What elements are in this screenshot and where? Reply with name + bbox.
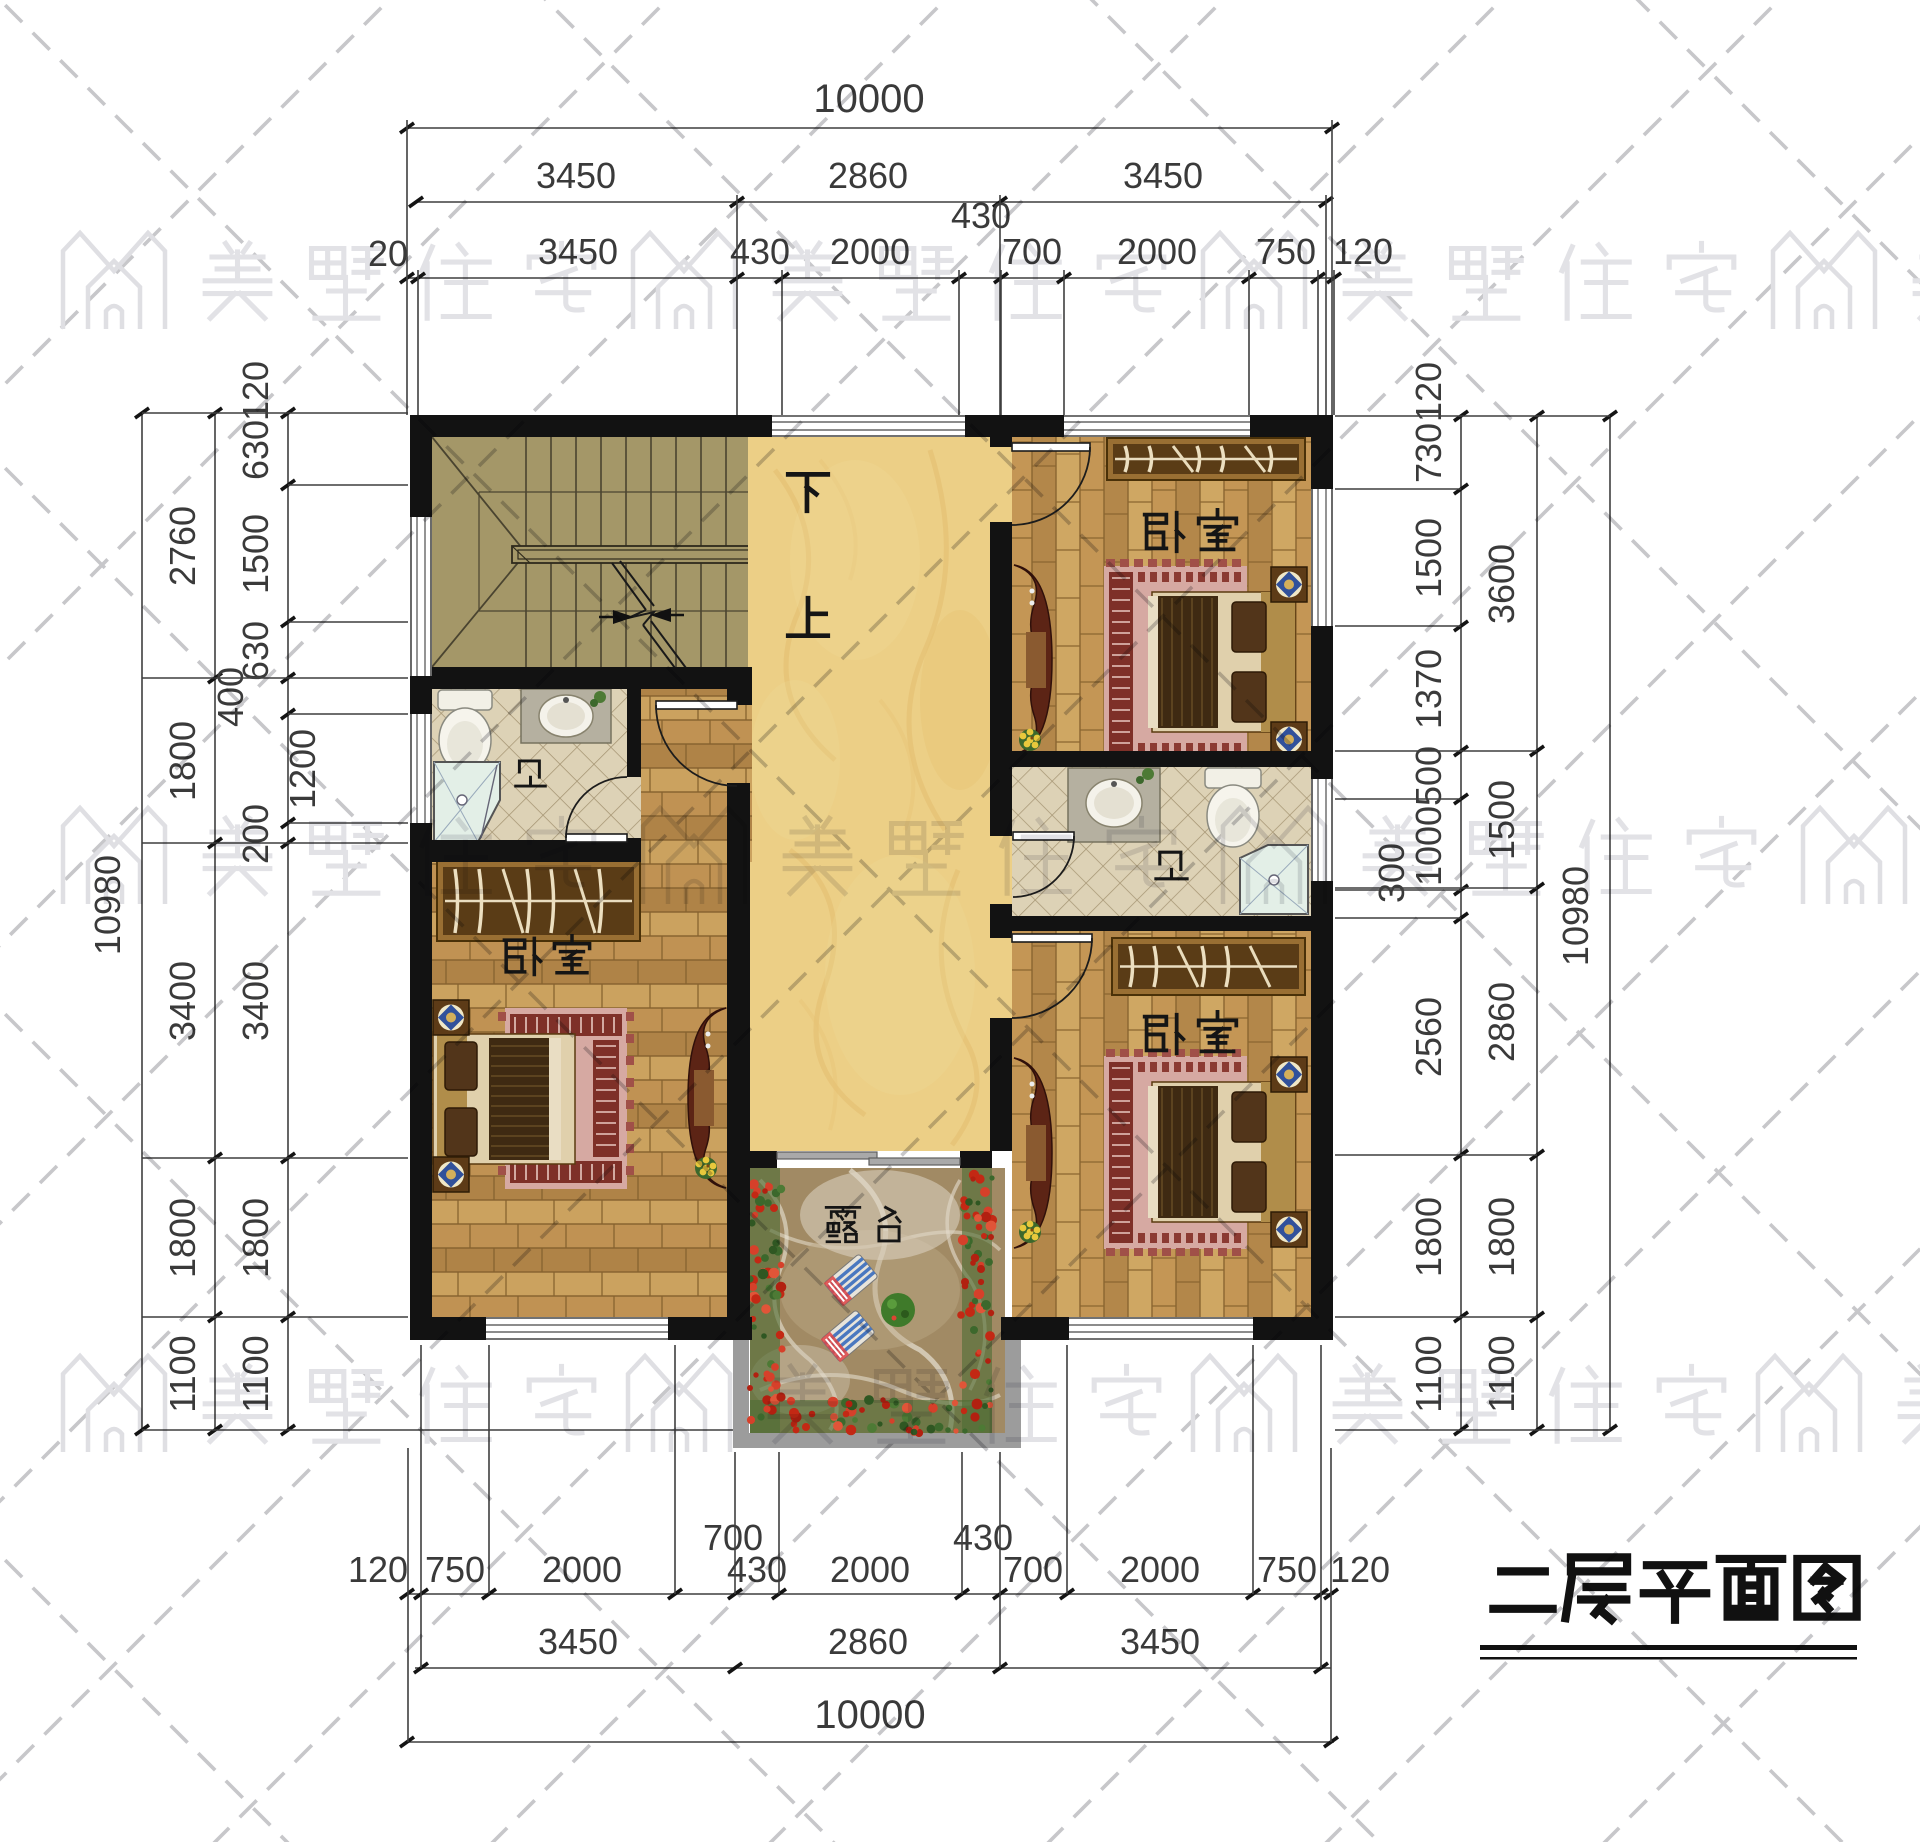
svg-text:120: 120: [235, 361, 276, 421]
svg-text:10980: 10980: [87, 855, 128, 955]
svg-text:120: 120: [1408, 362, 1449, 422]
svg-text:3450: 3450: [1120, 1621, 1200, 1662]
svg-text:700: 700: [703, 1517, 763, 1558]
svg-text:3400: 3400: [235, 961, 276, 1041]
svg-text:2000: 2000: [542, 1549, 622, 1590]
svg-text:20: 20: [368, 233, 408, 274]
svg-text:2860: 2860: [828, 1621, 908, 1662]
svg-text:750: 750: [425, 1549, 485, 1590]
svg-text:2760: 2760: [162, 506, 203, 586]
svg-text:1100: 1100: [162, 1335, 203, 1412]
svg-text:1500: 1500: [235, 514, 276, 594]
svg-text:430: 430: [951, 195, 1011, 236]
svg-text:2560: 2560: [1408, 997, 1449, 1077]
svg-text:3450: 3450: [536, 155, 616, 196]
svg-text:500: 500: [1408, 746, 1449, 806]
svg-text:3450: 3450: [538, 1621, 618, 1662]
svg-text:120: 120: [348, 1549, 408, 1590]
svg-text:1800: 1800: [1481, 1197, 1522, 1277]
svg-text:3400: 3400: [162, 961, 203, 1041]
svg-text:2000: 2000: [1120, 1549, 1200, 1590]
svg-text:3600: 3600: [1481, 544, 1522, 624]
svg-text:2860: 2860: [828, 155, 908, 196]
svg-text:630: 630: [235, 420, 276, 480]
svg-text:730: 730: [1408, 423, 1449, 483]
svg-text:3450: 3450: [1123, 155, 1203, 196]
svg-text:1800: 1800: [1408, 1197, 1449, 1277]
svg-text:10000: 10000: [814, 1693, 925, 1737]
svg-text:1370: 1370: [1408, 649, 1449, 729]
svg-text:2860: 2860: [1481, 982, 1522, 1062]
svg-text:1200: 1200: [282, 729, 323, 809]
svg-text:3450: 3450: [538, 231, 618, 272]
svg-text:10980: 10980: [1555, 866, 1596, 966]
svg-text:2000: 2000: [830, 1549, 910, 1590]
svg-text:120: 120: [1330, 1549, 1390, 1590]
svg-text:10000: 10000: [813, 77, 924, 121]
svg-text:1500: 1500: [1408, 518, 1449, 598]
svg-text:1800: 1800: [162, 1198, 203, 1278]
svg-text:400: 400: [210, 667, 251, 727]
